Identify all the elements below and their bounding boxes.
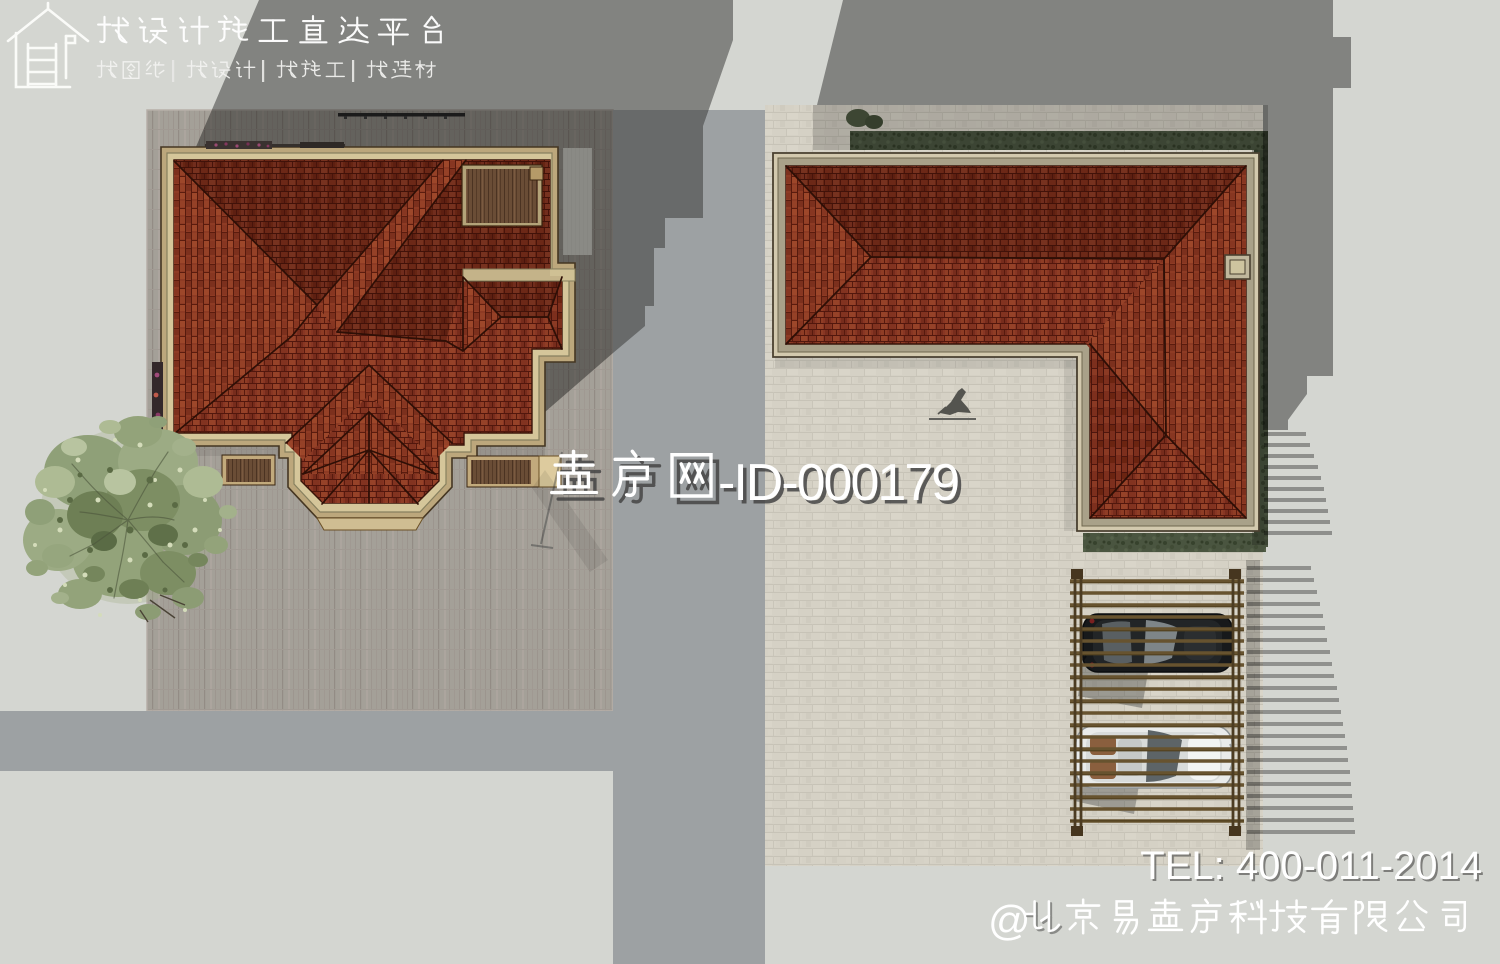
svg-text:TEL: 400-011-2014: TEL: 400-011-2014 bbox=[1140, 844, 1482, 888]
svg-text:@: @ bbox=[988, 897, 1031, 944]
svg-text:-ID-000179: -ID-000179 bbox=[718, 454, 958, 512]
